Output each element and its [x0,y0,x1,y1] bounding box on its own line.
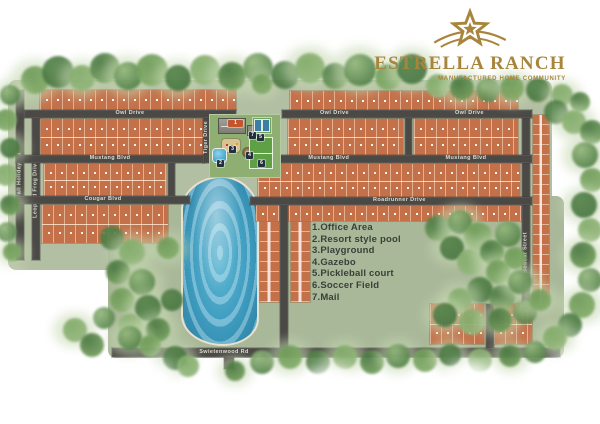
tree-canopy [495,221,521,247]
star-swoosh-icon [431,2,509,52]
legend-item: 1.Office Area [312,222,401,234]
legend-item: 4.Gazebo [312,257,401,269]
watercolor-white-wash [29,354,81,390]
watercolor-white-wash [446,361,494,395]
street-mustang-blvd-east: Mustang Blvd Mustang Blvd [278,155,532,163]
tree-canopy [499,345,521,367]
tree-canopy [252,74,272,94]
street-label: Owl Drive [455,110,484,118]
tree-canopy [225,361,245,381]
brand-subtitle: MANUFACTURED HOME COMMUNITY [372,75,568,83]
map-marker-pickleball: 5 [257,134,264,141]
tree-canopy [218,62,246,90]
street-label: Fall Holiday Rd [16,90,24,260]
lot-block [258,164,520,197]
tree-canopy [0,85,20,105]
tree-canopy [572,142,598,168]
tree-canopy [386,344,410,368]
legend-item: 6.Soccer Field [312,280,401,292]
site-plan-map: Fall Holiday Rd Leopard Frog Drive Tiger… [0,0,600,424]
tree-canopy [504,247,526,269]
tree-canopy [571,192,597,218]
street-label: Leopard Frog Drive [32,118,40,260]
pickleball-court-surface [263,120,269,131]
street-leopard-frog-drive: Leopard Frog Drive [32,118,40,260]
tree-canopy [0,138,20,158]
tree-canopy [161,289,183,311]
tree-canopy [157,237,179,259]
tree-canopy [80,333,104,357]
street-label: Mustang Blvd [90,155,131,163]
pickleball-court [253,118,271,133]
map-marker-office: 1 [228,120,243,127]
street-roadrunner-drive: Roadrunner Drive [250,197,532,205]
tree-canopy [295,53,325,83]
street-label: Owl Drive [320,110,349,118]
legend-item: 7.Mail [312,292,401,304]
map-marker-playground: 3 [229,146,236,153]
lot-block [291,222,310,302]
street-label: Cougar Blvd [84,196,121,204]
street-label: Roadrunner Drive [373,197,426,205]
legend-item: 2.Resort style pool [312,234,401,246]
legend-item: 5.Pickleball court [312,268,401,280]
street-connector-south [280,205,288,352]
street-cougar-blvd: Cougar Blvd [16,196,190,204]
watercolor-white-wash [0,275,30,300]
watercolor-white-wash [302,366,358,405]
lot-block [256,206,522,221]
map-legend: 1.Office Area 2.Resort style pool 3.Play… [312,222,401,303]
tree-canopy [0,195,20,215]
map-marker-gazebo: 4 [246,152,253,159]
tree-canopy [488,308,512,332]
resort-pool-lagoon [181,176,259,346]
pickleball-court-surface [255,120,261,131]
map-marker-soccer: 6 [258,160,265,167]
tree-canopy [570,242,596,268]
tree-canopy [177,355,199,377]
tree-canopy [165,65,191,91]
lot-block [288,119,403,155]
street-connector [168,163,175,196]
brand-title: ESTRELLA RANCH [372,53,568,75]
street-owl-drive-east: Owl Drive Owl Drive [282,110,532,118]
tree-canopy [543,326,567,350]
map-marker-mail: 7 [249,132,256,139]
playground-equipment [226,144,228,146]
lot-block [44,164,166,196]
street-mustang-blvd-west: Mustang Blvd [16,155,204,163]
watercolor-white-wash [126,361,174,395]
street-label: Mustang Blvd [308,155,349,163]
tree-canopy [333,345,357,369]
lot-block [260,222,279,302]
street-label: Swietenwood Rd [199,348,249,357]
brand-logo: ESTRELLA RANCH MANUFACTURED HOME COMMUNI… [372,2,568,83]
tree-canopy [3,243,21,261]
tree-canopy [524,341,546,363]
tree-canopy [433,303,457,327]
lot-block [414,119,518,155]
map-marker-pool: 2 [217,160,224,167]
street-owl-drive-west: Owl Drive [24,110,236,118]
tree-canopy [529,289,551,311]
street-fall-holiday-rd: Fall Holiday Rd [16,90,24,260]
street-connector [405,118,412,155]
legend-item: 3.Playground [312,245,401,257]
street-label: Owl Drive [116,110,145,118]
street-label: Mustang Blvd [446,155,487,163]
tree-canopy [278,345,302,369]
